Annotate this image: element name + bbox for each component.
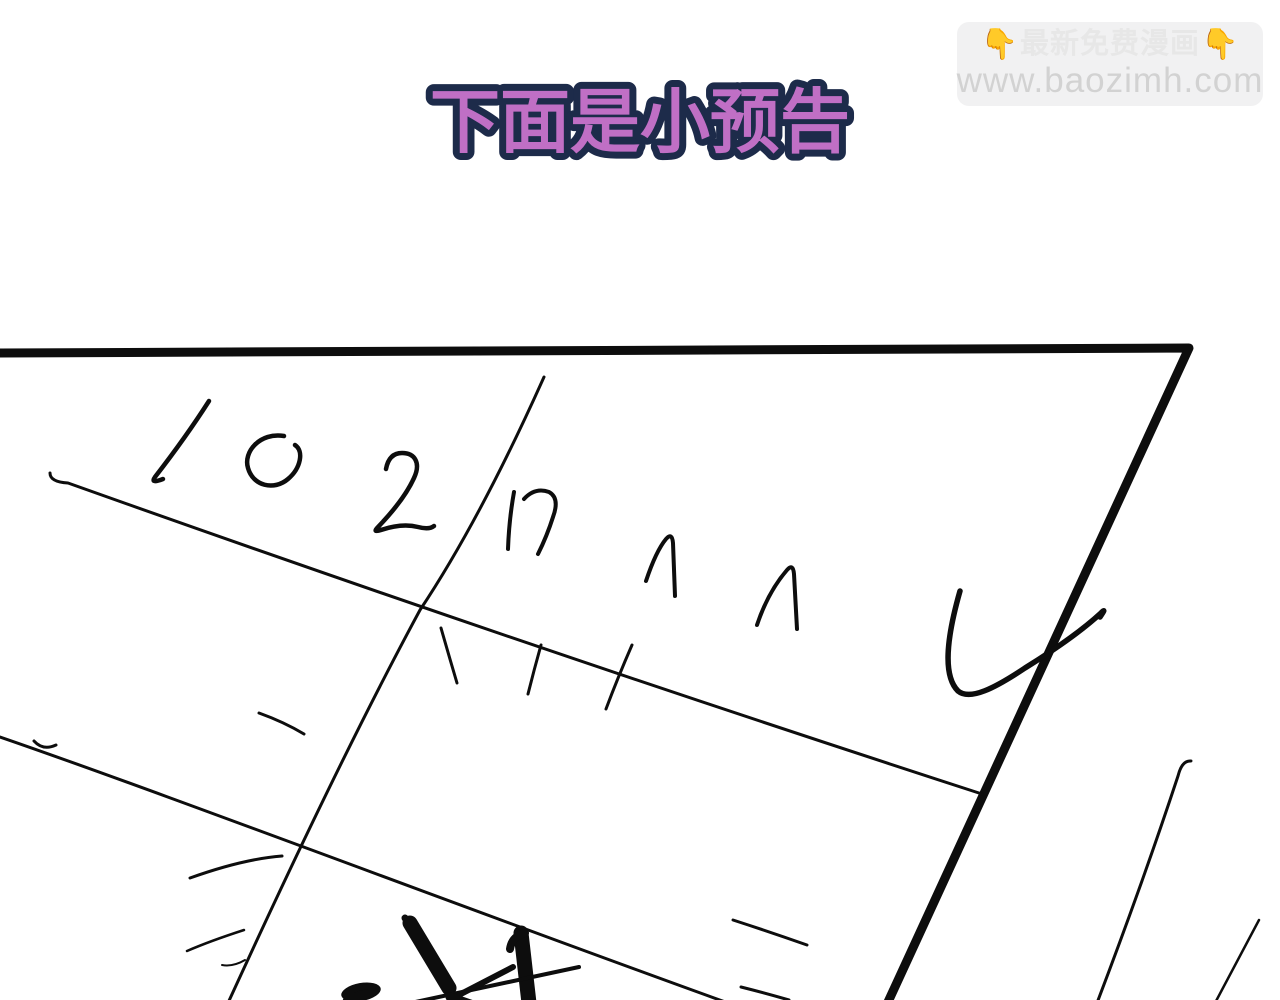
page-title-text: 下面是小预告 (430, 83, 850, 161)
right-side-strokes (1097, 761, 1259, 1000)
watermark-slogan-text: 最新免费漫画 (1020, 28, 1200, 60)
checkmark-stroke (948, 591, 1104, 694)
watermark-url: www.baozimh.com (957, 61, 1264, 100)
digit-0 (247, 435, 300, 485)
point-down-emoji-right: 👇 (1201, 28, 1239, 62)
speed-lines (34, 741, 282, 965)
row-line-2 (0, 737, 728, 1000)
table-lines (0, 377, 982, 1000)
tally-scribbles (508, 491, 797, 629)
digit-2 (376, 453, 434, 531)
point-down-emoji-left: 👇 (981, 28, 1019, 62)
site-watermark: 👇 最新免费漫画 👇 www.baozimh.com (957, 22, 1263, 106)
dash-strokes (259, 713, 807, 1000)
handwritten-102 (154, 401, 434, 531)
row-line-1 (50, 473, 982, 794)
watermark-slogan: 👇 最新免费漫画 👇 (980, 28, 1241, 62)
digit-1 (154, 401, 209, 481)
crossout-scribble (340, 918, 579, 1000)
